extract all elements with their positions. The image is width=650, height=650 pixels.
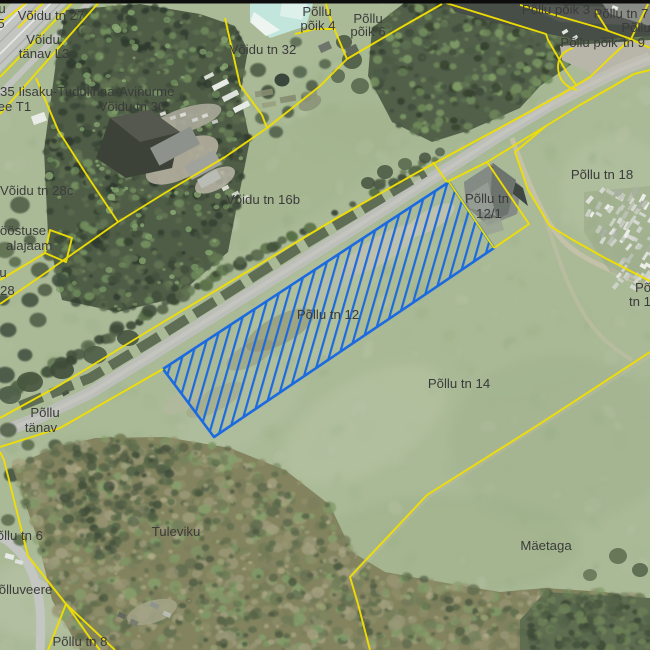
svg-text:Võidu: Võidu <box>26 32 60 47</box>
svg-text:tn 9: tn 9 <box>623 35 645 50</box>
svg-text:Põllu tn 7: Põllu tn 7 <box>594 6 649 21</box>
svg-text:tee T1: tee T1 <box>0 99 31 114</box>
svg-text:Põllu tn 14: Põllu tn 14 <box>428 376 490 391</box>
svg-text:Tuleviku: Tuleviku <box>152 524 201 539</box>
svg-text:Põllu tn 12: Põllu tn 12 <box>297 307 359 322</box>
svg-text:35: 35 <box>0 16 5 31</box>
svg-text:Võidu tn 16b: Võidu tn 16b <box>226 192 300 207</box>
svg-text:Põ: Põ <box>635 280 650 295</box>
svg-text:alajaam: alajaam <box>6 238 52 253</box>
svg-text:Mäetaga: Mäetaga <box>520 538 572 553</box>
svg-text:35 Iisaku-Tudulinna-Avinurme: 35 Iisaku-Tudulinna-Avinurme <box>0 84 174 99</box>
svg-text:tn 1: tn 1 <box>629 294 650 309</box>
svg-text:öitööstuse: öitööstuse <box>0 223 46 238</box>
svg-text:põik 6: põik 6 <box>350 24 385 39</box>
svg-text:Põllu: Põllu <box>30 405 59 420</box>
svg-text:du: du <box>0 265 7 280</box>
svg-text:Võidu tn 30: Võidu tn 30 <box>99 99 166 114</box>
svg-text:Põllu põik: Põllu põik <box>560 35 618 50</box>
svg-text:28: 28 <box>0 283 15 298</box>
svg-text:Põllu põik 3: Põllu põik 3 <box>522 2 590 17</box>
svg-text:12/1: 12/1 <box>476 206 502 221</box>
svg-text:Põllu: Põllu <box>621 20 650 35</box>
svg-text:põik 4: põik 4 <box>300 18 335 33</box>
svg-text:Põllu tn 6: Põllu tn 6 <box>0 528 43 543</box>
svg-text:tänav L3: tänav L3 <box>19 46 70 61</box>
svg-text:Põlluveere: Põlluveere <box>0 582 52 597</box>
svg-text:Põllu tn 8: Põllu tn 8 <box>53 634 108 649</box>
svg-text:Võidu tn 27: Võidu tn 27 <box>18 8 85 23</box>
svg-text:Põllu tn: Põllu tn <box>465 191 509 206</box>
svg-text:Võidu tn 32: Võidu tn 32 <box>230 42 297 57</box>
svg-text:Võidu tn 28c: Võidu tn 28c <box>0 183 74 198</box>
svg-text:Põllu: Põllu <box>302 4 331 19</box>
svg-text:Põllu tn 18: Põllu tn 18 <box>571 167 633 182</box>
svg-text:tänav: tänav <box>25 420 58 435</box>
